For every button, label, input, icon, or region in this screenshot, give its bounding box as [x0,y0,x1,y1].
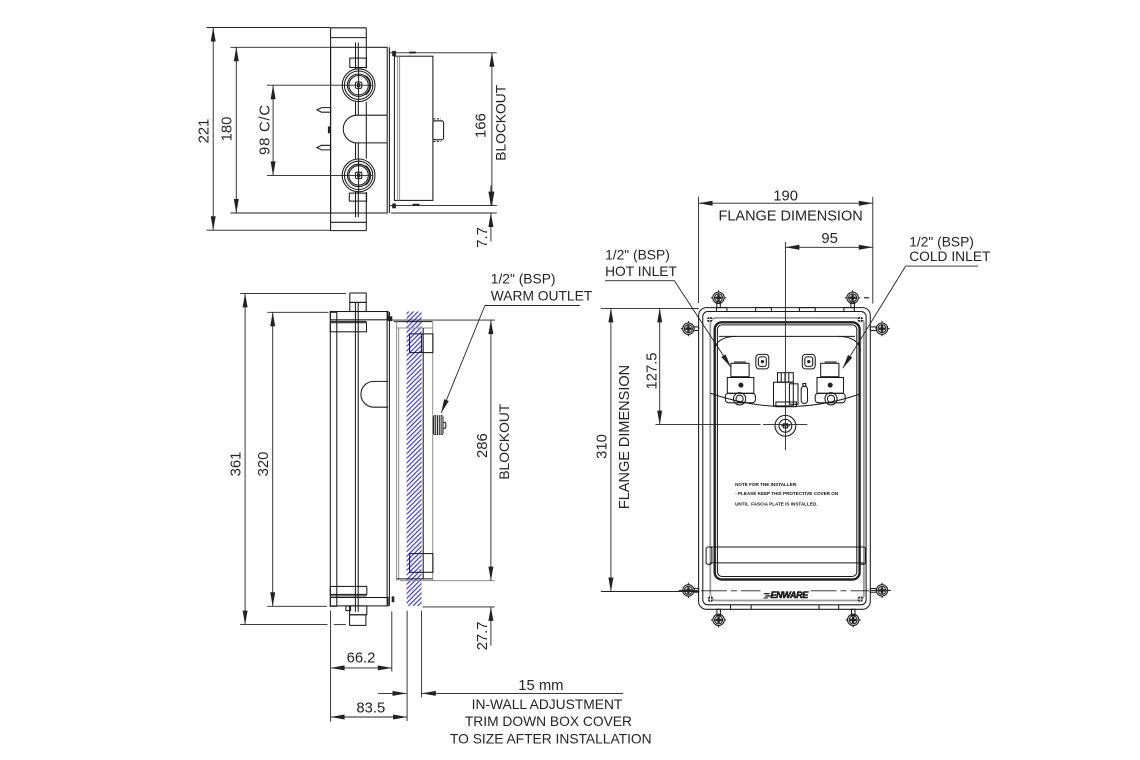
svg-text:98 C/C: 98 C/C [258,104,274,155]
svg-text:- PLEASE KEEP THIS PROTECTIVE: - PLEASE KEEP THIS PROTECTIVE COVER ON [735,491,839,496]
svg-text:1/2" (BSP): 1/2" (BSP) [491,271,556,286]
svg-text:WARM OUTLET: WARM OUTLET [491,288,593,303]
svg-text:310: 310 [594,434,610,459]
svg-text:TO SIZE AFTER INSTALLATION: TO SIZE AFTER INSTALLATION [450,732,652,747]
svg-text:83.5: 83.5 [356,701,385,717]
svg-text:361: 361 [228,452,244,477]
svg-text:286: 286 [475,433,491,458]
svg-text:221: 221 [197,119,213,144]
svg-text:TRIM DOWN BOX COVER: TRIM DOWN BOX COVER [465,714,632,729]
svg-text:IN-WALL ADJUSTMENT: IN-WALL ADJUSTMENT [472,697,623,712]
svg-text:15 mm: 15 mm [518,678,563,694]
svg-text:320: 320 [256,452,272,477]
svg-text:FLANGE DIMENSION: FLANGE DIMENSION [718,209,862,225]
svg-text:COLD INLET: COLD INLET [909,249,991,264]
svg-text:190: 190 [773,189,798,205]
svg-text:BLOCKOUT: BLOCKOUT [497,403,512,479]
svg-text:UNTIL FASCIA PLATE IS INSTALL: UNTIL FASCIA PLATE IS INSTALLED. [735,501,817,506]
svg-text:27.7: 27.7 [475,621,491,650]
svg-text:1/2" (BSP): 1/2" (BSP) [909,234,974,249]
svg-text:180: 180 [220,117,236,142]
svg-text:66.2: 66.2 [347,651,376,667]
svg-text:NOTE FOR THE INSTALLER:: NOTE FOR THE INSTALLER: [735,482,798,487]
svg-text:FLANGE DIMENSION: FLANGE DIMENSION [617,365,633,509]
svg-text:HOT INLET: HOT INLET [605,264,677,279]
svg-text:ENWARE: ENWARE [771,590,810,600]
svg-text:7.7: 7.7 [475,227,491,248]
svg-text:BLOCKOUT: BLOCKOUT [493,84,508,160]
svg-text:127.5: 127.5 [644,352,660,389]
svg-text:166: 166 [474,113,490,138]
svg-text:1/2" (BSP): 1/2" (BSP) [605,247,670,262]
svg-text:95: 95 [821,231,837,247]
